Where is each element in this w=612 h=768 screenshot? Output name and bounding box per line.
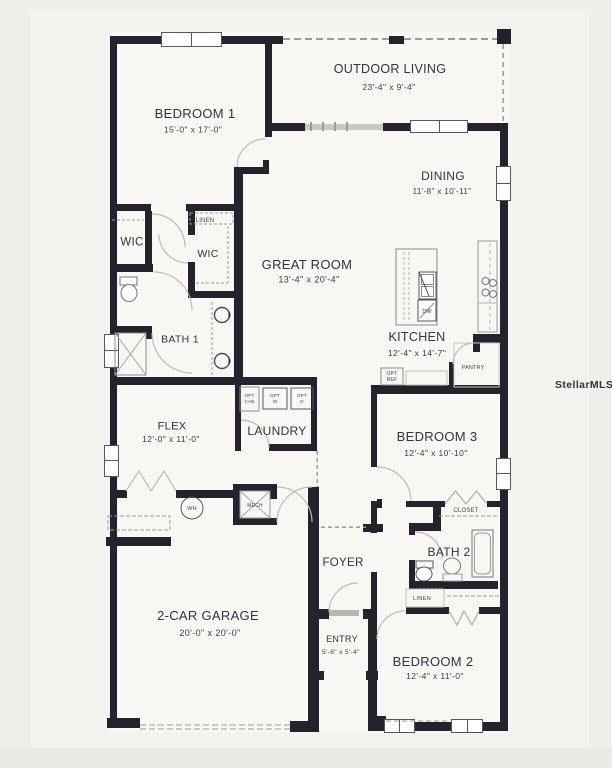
svg-text:LINEN: LINEN: [196, 218, 215, 224]
svg-text:GREAT ROOM: GREAT ROOM: [262, 257, 353, 272]
svg-text:KITCHEN: KITCHEN: [389, 330, 446, 344]
svg-text:DINING: DINING: [421, 169, 465, 183]
svg-text:MECH: MECH: [247, 503, 263, 509]
svg-text:FOYER: FOYER: [322, 557, 363, 569]
svg-text:BEDROOM 1: BEDROOM 1: [155, 106, 236, 121]
svg-text:12'-4" x 14'-7": 12'-4" x 14'-7": [388, 348, 446, 358]
svg-text:ENTRY: ENTRY: [326, 634, 358, 644]
svg-text:BEDROOM 3: BEDROOM 3: [397, 429, 478, 444]
svg-text:13'-4" x 20'-4": 13'-4" x 20'-4": [278, 275, 339, 285]
svg-text:11'-8" x 10'-11": 11'-8" x 10'-11": [413, 187, 472, 196]
svg-text:BEDROOM 2: BEDROOM 2: [393, 654, 474, 669]
svg-text:WH: WH: [187, 506, 197, 512]
svg-text:OUTDOOR LIVING: OUTDOOR LIVING: [334, 62, 447, 76]
svg-text:5'-8" x 5'-4": 5'-8" x 5'-4": [322, 649, 360, 656]
svg-text:23'-4" x 9'-4": 23'-4" x 9'-4": [362, 82, 415, 92]
svg-text:20'-0" x 20'-0": 20'-0" x 20'-0": [179, 628, 240, 638]
svg-text:OPT: OPT: [244, 393, 254, 398]
svg-text:WIC: WIC: [197, 248, 218, 260]
svg-text:REF: REF: [387, 377, 398, 383]
svg-text:2-CAR GARAGE: 2-CAR GARAGE: [157, 608, 259, 623]
svg-text:BATH 2: BATH 2: [428, 545, 471, 559]
svg-text:PANTRY: PANTRY: [461, 365, 484, 371]
svg-text:LINEN: LINEN: [413, 596, 431, 602]
svg-text:BATH 1: BATH 1: [161, 334, 199, 346]
svg-text:StellarMLS: StellarMLS: [555, 379, 612, 391]
svg-text:CLOSET: CLOSET: [453, 508, 478, 514]
svg-text:CAB: CAB: [244, 399, 254, 404]
svg-text:FLEX: FLEX: [158, 421, 187, 433]
svg-text:D: D: [300, 399, 304, 404]
svg-text:WIC: WIC: [120, 237, 143, 249]
svg-text:12'-0" x 11'-0": 12'-0" x 11'-0": [142, 434, 200, 444]
svg-text:LAUNDRY: LAUNDRY: [247, 424, 306, 438]
svg-text:W: W: [273, 399, 278, 404]
svg-text:15'-0" x 17'-0": 15'-0" x 17'-0": [164, 125, 222, 135]
svg-text:OPT: OPT: [297, 393, 307, 398]
svg-text:12'-4" x 10'-10": 12'-4" x 10'-10": [404, 448, 467, 458]
svg-text:OPT: OPT: [270, 393, 280, 398]
svg-text:DW: DW: [422, 309, 432, 315]
svg-text:12'-4" x 11'-0": 12'-4" x 11'-0": [406, 671, 464, 681]
